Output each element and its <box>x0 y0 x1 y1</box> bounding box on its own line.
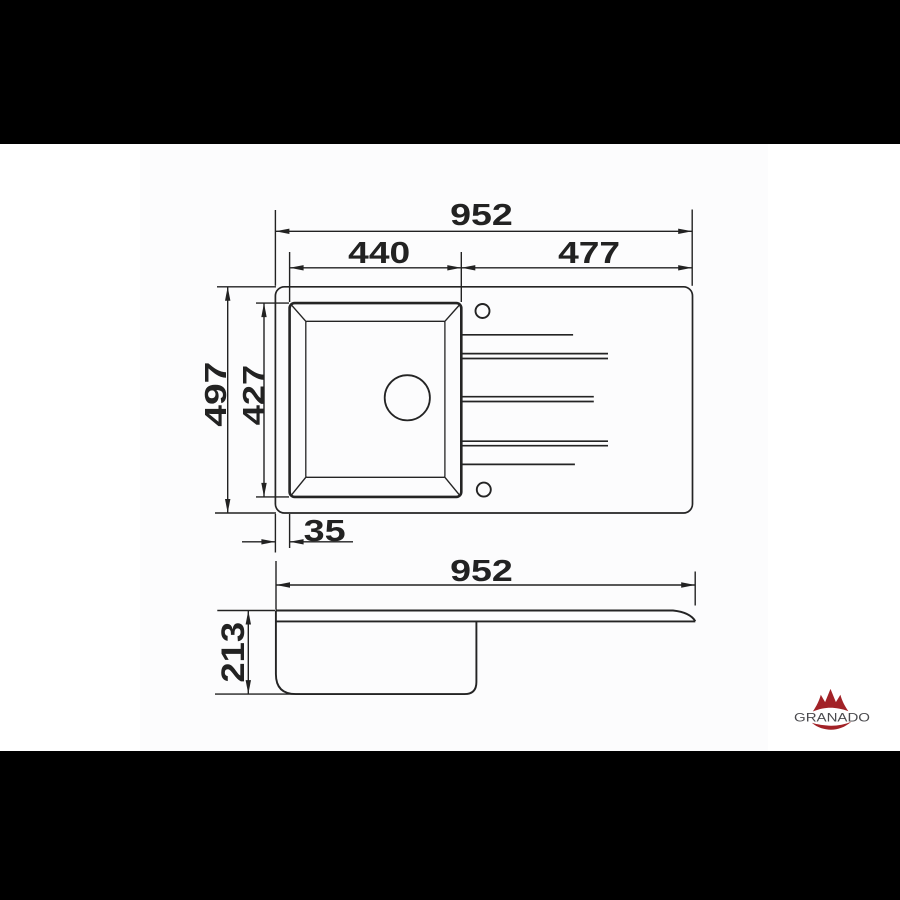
svg-text:GRANADO: GRANADO <box>794 712 870 724</box>
svg-text:35: 35 <box>304 513 346 548</box>
svg-text:952: 952 <box>450 197 513 232</box>
svg-text:427: 427 <box>236 365 271 425</box>
svg-text:497: 497 <box>198 362 233 427</box>
svg-text:213: 213 <box>215 622 251 683</box>
svg-text:477: 477 <box>558 235 620 270</box>
svg-text:952: 952 <box>450 553 513 588</box>
svg-text:440: 440 <box>348 235 410 270</box>
